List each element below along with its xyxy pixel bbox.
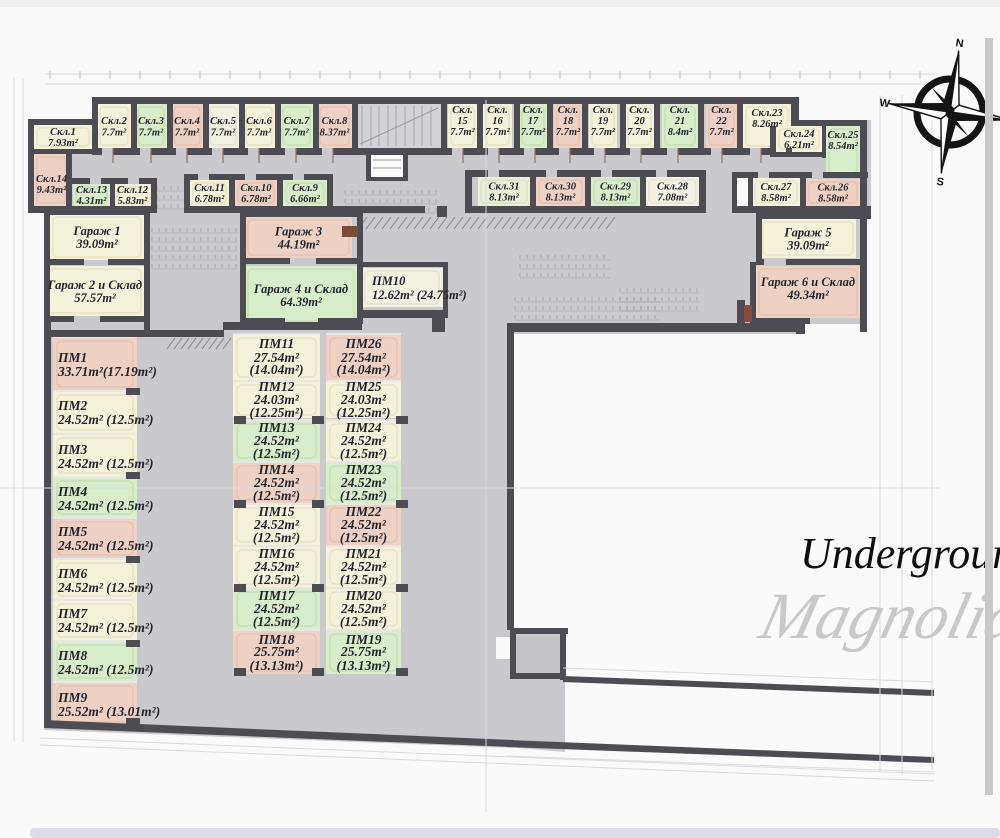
svg-text:8.26m²: 8.26m² bbox=[752, 119, 783, 130]
svg-text:Гараж 2 и Склад: Гараж 2 и Склад bbox=[47, 278, 142, 292]
svg-text:(12.5m²): (12.5m²) bbox=[253, 530, 300, 545]
svg-text:ПМ1: ПМ1 bbox=[57, 350, 87, 365]
svg-text:Скл.28: Скл.28 bbox=[657, 182, 689, 193]
svg-text:7.7m²: 7.7m² bbox=[521, 127, 546, 138]
svg-text:ПМ9: ПМ9 bbox=[57, 690, 88, 705]
svg-text:25.52m² (13.01m²): 25.52m² (13.01m²) bbox=[57, 704, 160, 719]
svg-text:Гараж 4 и Склад: Гараж 4 и Склад bbox=[253, 282, 348, 296]
svg-text:Скл.5: Скл.5 bbox=[210, 116, 236, 127]
svg-text:ПМ5: ПМ5 bbox=[57, 524, 88, 539]
svg-text:(12.5m²): (12.5m²) bbox=[340, 530, 387, 545]
svg-text:24.52m² (12.5m²): 24.52m² (12.5m²) bbox=[57, 620, 153, 635]
svg-text:24.52m² (12.5m²): 24.52m² (12.5m²) bbox=[57, 498, 153, 513]
svg-text:16: 16 bbox=[492, 116, 503, 127]
svg-text:(12.5m²): (12.5m²) bbox=[340, 614, 387, 629]
svg-text:19: 19 bbox=[598, 116, 609, 127]
svg-text:(13.13m²): (13.13m²) bbox=[337, 658, 391, 673]
svg-text:Magnolia: Magnolia bbox=[752, 580, 1000, 653]
svg-text:8.54m²: 8.54m² bbox=[828, 141, 859, 152]
svg-text:Скл.24: Скл.24 bbox=[783, 129, 814, 140]
svg-text:8.13m²: 8.13m² bbox=[546, 193, 577, 204]
svg-text:7.7m²: 7.7m² bbox=[627, 127, 652, 138]
svg-text:24.52m² (12.5m²): 24.52m² (12.5m²) bbox=[57, 456, 153, 471]
svg-text:(14.04m²): (14.04m²) bbox=[250, 362, 304, 377]
svg-text:24.52m² (12.5m²): 24.52m² (12.5m²) bbox=[57, 412, 153, 427]
svg-text:7.7m²: 7.7m² bbox=[247, 127, 272, 138]
svg-text:7.7m²: 7.7m² bbox=[102, 127, 127, 138]
svg-text:39.09m²: 39.09m² bbox=[75, 237, 118, 251]
svg-text:(12.5m²): (12.5m²) bbox=[340, 488, 387, 503]
svg-text:7.7m²: 7.7m² bbox=[284, 127, 309, 138]
svg-text:(12.25m²): (12.25m²) bbox=[250, 405, 304, 420]
svg-text:24.52m² (12.5m²): 24.52m² (12.5m²) bbox=[57, 538, 153, 553]
svg-text:(12.5m²): (12.5m²) bbox=[253, 572, 300, 587]
svg-text:24.52m² (12.5m²): 24.52m² (12.5m²) bbox=[57, 662, 153, 677]
svg-text:6.78m²: 6.78m² bbox=[195, 194, 226, 205]
svg-text:64.39m²: 64.39m² bbox=[280, 295, 322, 309]
svg-text:Скл.31: Скл.31 bbox=[488, 182, 519, 193]
svg-text:8.58m²: 8.58m² bbox=[818, 194, 849, 205]
svg-text:5.83m²: 5.83m² bbox=[118, 196, 149, 207]
svg-text:ПМ10: ПМ10 bbox=[371, 274, 406, 288]
svg-text:4.31m²: 4.31m² bbox=[76, 196, 108, 207]
svg-text:57.57m²: 57.57m² bbox=[74, 291, 116, 305]
svg-text:Скл.1: Скл.1 bbox=[50, 127, 76, 138]
svg-text:(12.25m²): (12.25m²) bbox=[337, 405, 391, 420]
svg-text:44.19m²: 44.19m² bbox=[277, 237, 320, 251]
svg-text:7.08m²: 7.08m² bbox=[658, 193, 689, 204]
svg-text:7.7m²: 7.7m² bbox=[485, 127, 510, 138]
svg-text:(12.5m²): (12.5m²) bbox=[340, 572, 387, 587]
svg-text:(12.5m²): (12.5m²) bbox=[253, 446, 300, 461]
svg-text:Скл.4: Скл.4 bbox=[174, 116, 200, 127]
svg-text:7.93m²: 7.93m² bbox=[48, 138, 79, 149]
svg-text:Гараж 5: Гараж 5 bbox=[783, 225, 831, 239]
svg-text:7.7m²: 7.7m² bbox=[211, 127, 236, 138]
svg-text:ПМ2: ПМ2 bbox=[57, 398, 88, 413]
svg-text:ПМ3: ПМ3 bbox=[57, 442, 88, 457]
svg-text:17: 17 bbox=[528, 116, 539, 127]
svg-text:ПМ26: ПМ26 bbox=[344, 336, 381, 351]
svg-text:(12.5m²): (12.5m²) bbox=[340, 446, 387, 461]
svg-text:ПМ11: ПМ11 bbox=[258, 336, 294, 351]
svg-text:8.13m²: 8.13m² bbox=[601, 193, 632, 204]
svg-text:Скл.25: Скл.25 bbox=[827, 130, 858, 141]
svg-text:12.62m² (24.75m²): 12.62m² (24.75m²) bbox=[372, 288, 467, 302]
svg-text:ПМ7: ПМ7 bbox=[57, 606, 89, 621]
svg-text:39.09m²: 39.09m² bbox=[786, 238, 829, 252]
svg-text:Гараж 1: Гараж 1 bbox=[72, 224, 120, 238]
svg-text:Скл.: Скл. bbox=[452, 105, 473, 116]
svg-text:Скл.7: Скл.7 bbox=[284, 116, 311, 127]
svg-text:Скл.12: Скл.12 bbox=[117, 185, 149, 196]
svg-text:Скл.23: Скл.23 bbox=[751, 108, 782, 119]
svg-text:Скл.27: Скл.27 bbox=[760, 182, 792, 193]
svg-text:9.43m²: 9.43m² bbox=[37, 185, 68, 196]
svg-text:21: 21 bbox=[674, 116, 686, 127]
svg-text:Скл.11: Скл.11 bbox=[194, 183, 224, 194]
svg-text:33.71m²(17.19m²): 33.71m²(17.19m²) bbox=[57, 364, 157, 379]
svg-text:(14.04m²): (14.04m²) bbox=[337, 362, 391, 377]
svg-text:8.13m²: 8.13m² bbox=[489, 193, 520, 204]
svg-text:Скл.29: Скл.29 bbox=[600, 182, 632, 193]
svg-text:Скл.: Скл. bbox=[711, 105, 732, 116]
svg-text:Underground: Underground bbox=[800, 529, 1000, 578]
svg-text:Скл.8: Скл.8 bbox=[322, 116, 349, 127]
svg-text:8.4m²: 8.4m² bbox=[668, 127, 693, 138]
svg-text:(13.13m²): (13.13m²) bbox=[250, 658, 304, 673]
svg-text:6.21m²: 6.21m² bbox=[784, 140, 815, 151]
svg-text:49.34m²: 49.34m² bbox=[786, 288, 829, 302]
svg-text:8.37m²: 8.37m² bbox=[320, 127, 351, 138]
svg-text:Скл.30: Скл.30 bbox=[545, 182, 577, 193]
svg-text:25.75m²: 25.75m² bbox=[253, 644, 300, 659]
svg-text:Скл.6: Скл.6 bbox=[246, 116, 273, 127]
svg-text:6.78m²: 6.78m² bbox=[241, 194, 272, 205]
svg-text:7.7m²: 7.7m² bbox=[709, 127, 734, 138]
svg-text:Скл.: Скл. bbox=[523, 105, 544, 116]
svg-text:Скл.9: Скл.9 bbox=[292, 183, 319, 194]
svg-text:ПМ8: ПМ8 bbox=[57, 648, 88, 663]
svg-text:25.75m²: 25.75m² bbox=[340, 644, 387, 659]
svg-text:Скл.14: Скл.14 bbox=[36, 174, 67, 185]
svg-text:22: 22 bbox=[715, 116, 727, 127]
svg-text:(12.5m²): (12.5m²) bbox=[253, 614, 300, 629]
svg-text:Гараж 3: Гараж 3 bbox=[274, 224, 322, 238]
svg-text:8.58m²: 8.58m² bbox=[761, 193, 792, 204]
svg-text:18: 18 bbox=[563, 116, 574, 127]
svg-text:Скл.13: Скл.13 bbox=[76, 185, 107, 196]
svg-text:Скл.2: Скл.2 bbox=[101, 116, 128, 127]
svg-text:Скл.3: Скл.3 bbox=[138, 116, 164, 127]
svg-text:N: N bbox=[955, 37, 965, 50]
svg-text:20: 20 bbox=[633, 116, 645, 127]
svg-text:ПМ6: ПМ6 bbox=[57, 566, 88, 581]
svg-text:Скл.: Скл. bbox=[629, 105, 650, 116]
svg-text:(12.5m²): (12.5m²) bbox=[253, 488, 300, 503]
svg-text:Скл.26: Скл.26 bbox=[817, 183, 849, 194]
svg-text:15: 15 bbox=[457, 116, 468, 127]
svg-text:Скл.: Скл. bbox=[670, 105, 691, 116]
svg-text:7.7m²: 7.7m² bbox=[556, 127, 581, 138]
svg-text:7.7m²: 7.7m² bbox=[450, 127, 475, 138]
svg-text:Скл.: Скл. bbox=[558, 105, 579, 116]
svg-text:Скл.10: Скл.10 bbox=[240, 183, 272, 194]
svg-text:Гараж 6 и Склад: Гараж 6 и Склад bbox=[760, 275, 855, 289]
svg-text:7.7m²: 7.7m² bbox=[175, 127, 200, 138]
svg-text:7.7m²: 7.7m² bbox=[139, 127, 164, 138]
svg-text:Скл.: Скл. bbox=[593, 105, 614, 116]
svg-text:6.66m²: 6.66m² bbox=[290, 194, 321, 205]
svg-text:Скл.: Скл. bbox=[487, 105, 508, 116]
svg-text:7.7m²: 7.7m² bbox=[591, 127, 616, 138]
svg-text:24.52m² (12.5m²): 24.52m² (12.5m²) bbox=[57, 580, 153, 595]
svg-text:ПМ4: ПМ4 bbox=[57, 484, 88, 499]
